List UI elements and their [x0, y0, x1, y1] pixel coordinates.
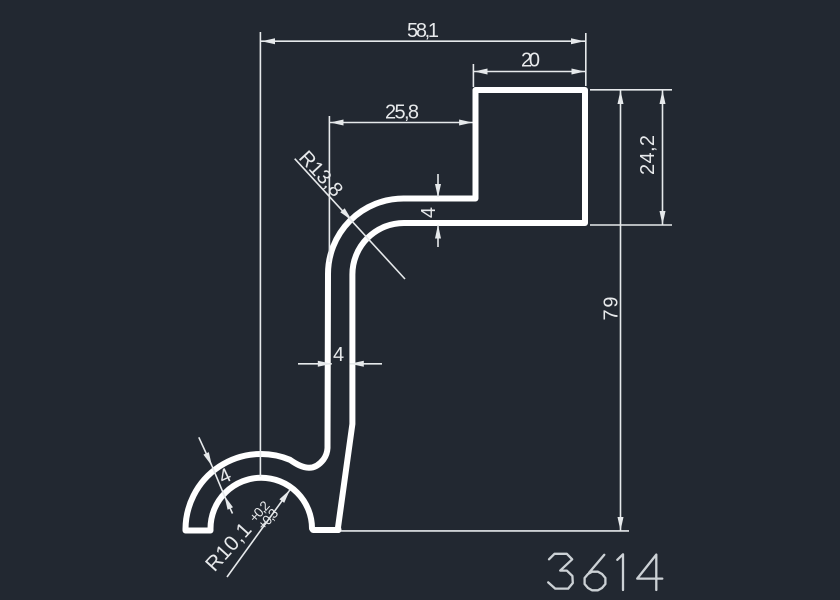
svg-text:79: 79: [601, 297, 623, 321]
svg-text:25,8: 25,8: [385, 101, 419, 123]
svg-text:58,1: 58,1: [407, 20, 439, 42]
svg-text:4: 4: [333, 344, 344, 366]
svg-text:24,2: 24,2: [637, 135, 659, 175]
svg-text:4: 4: [418, 207, 440, 218]
svg-text:20: 20: [521, 49, 540, 71]
